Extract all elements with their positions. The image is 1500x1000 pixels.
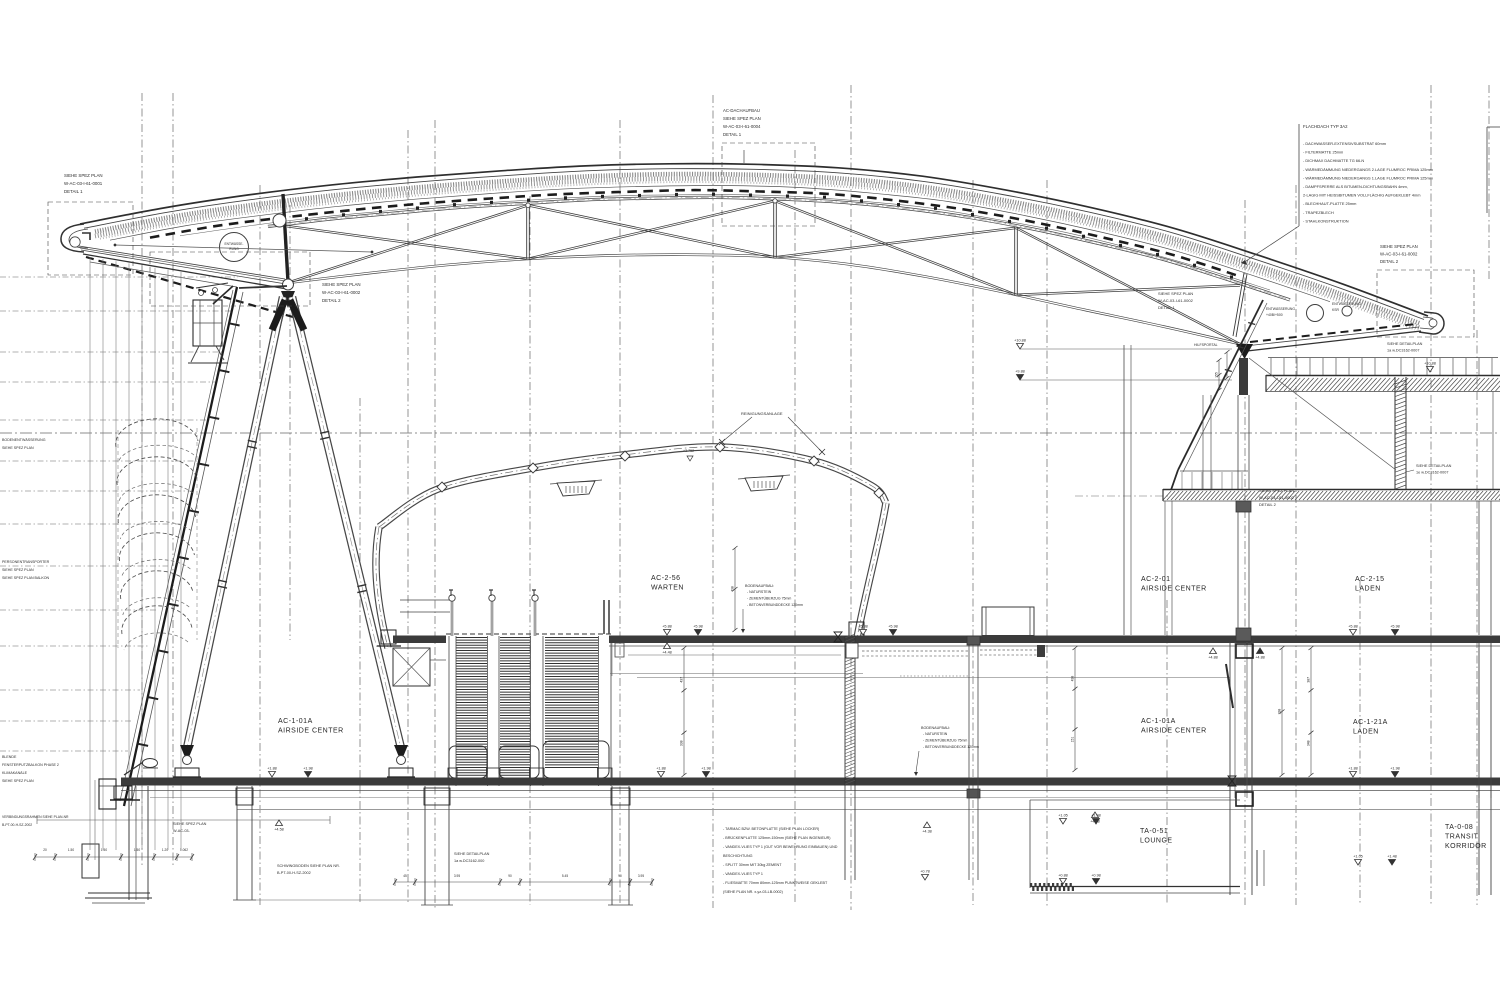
svg-text:AC-1-01A: AC-1-01A bbox=[278, 718, 313, 725]
svg-text:- DICHMAX DACHMATTE TG 66-N: - DICHMAX DACHMATTE TG 66-N bbox=[1303, 158, 1364, 163]
svg-text:2-LAGIG MIT HEISSBITUMEN VOLLF: 2-LAGIG MIT HEISSBITUMEN VOLLFLÄCHIG AUF… bbox=[1303, 193, 1420, 198]
svg-text:SCHWINGBODEN SIEHE PLAN NR.: SCHWINGBODEN SIEHE PLAN NR. bbox=[277, 864, 340, 868]
svg-text:ENTWÄSSE-: ENTWÄSSE- bbox=[225, 242, 244, 246]
svg-text:+9.88: +9.88 bbox=[1015, 370, 1025, 374]
svg-text:+1.48: +1.48 bbox=[1091, 814, 1101, 818]
svg-text:LOUNGE: LOUNGE bbox=[1140, 838, 1173, 845]
svg-text:+3.752: +3.752 bbox=[683, 449, 694, 453]
svg-text:DETAIL 2: DETAIL 2 bbox=[322, 298, 341, 303]
svg-text:- SPLITT 30mm MIT 30kg ZEMENT: - SPLITT 30mm MIT 30kg ZEMENT bbox=[723, 863, 782, 867]
svg-text:AIRSIDE CENTER: AIRSIDE CENTER bbox=[1141, 586, 1207, 593]
svg-text:VERBINDUNGSRAHMEN SIEHE PLAN-N: VERBINDUNGSRAHMEN SIEHE PLAN-NR bbox=[2, 815, 69, 819]
svg-text:348: 348 bbox=[1307, 740, 1311, 746]
svg-text:W-AC-03-I-61-0002: W-AC-03-I-61-0002 bbox=[1380, 252, 1418, 257]
svg-text:1a w.DC3162-000: 1a w.DC3162-000 bbox=[454, 859, 484, 863]
svg-text:PERSONENTRANSPORTER: PERSONENTRANSPORTER bbox=[2, 560, 50, 564]
svg-text:20: 20 bbox=[43, 848, 47, 852]
svg-text:REINIGUNGSANLAGE: REINIGUNGSANLAGE bbox=[741, 411, 783, 416]
svg-text:- FILTERMATTE 25mm: - FILTERMATTE 25mm bbox=[1303, 150, 1343, 155]
svg-text:1.50: 1.50 bbox=[68, 848, 74, 852]
svg-text:SIEHE SPEZ PLAN: SIEHE SPEZ PLAN bbox=[1259, 488, 1294, 493]
svg-text:KSR: KSR bbox=[1332, 308, 1340, 312]
svg-text:DETAIL 1: DETAIL 1 bbox=[1158, 305, 1176, 310]
svg-text:+10.88: +10.88 bbox=[1424, 362, 1436, 366]
svg-text:45: 45 bbox=[403, 874, 407, 878]
svg-text:- BLECHHAUT-PLATTE 25mm: - BLECHHAUT-PLATTE 25mm bbox=[1303, 201, 1356, 206]
svg-text:SIEHE SPEZ PLAN: SIEHE SPEZ PLAN bbox=[1380, 244, 1418, 249]
svg-text:- WÄRMEDÄMMUNG NIEDERGANGS 2.L: - WÄRMEDÄMMUNG NIEDERGANGS 2.LAGE FLUMRO… bbox=[1303, 167, 1433, 172]
svg-text:+1.88: +1.88 bbox=[1348, 767, 1358, 771]
svg-text:155: 155 bbox=[1215, 372, 1219, 378]
svg-text:DETAIL 1: DETAIL 1 bbox=[723, 132, 742, 137]
svg-text:151: 151 bbox=[1071, 737, 1075, 743]
svg-text:AC-2-15: AC-2-15 bbox=[1355, 576, 1385, 583]
svg-text:AC-1-01A: AC-1-01A bbox=[1141, 718, 1176, 725]
svg-text:+5.98: +5.98 bbox=[888, 625, 898, 629]
svg-text:KORRIDOR: KORRIDOR bbox=[1445, 843, 1487, 850]
svg-text:DETAIL 2: DETAIL 2 bbox=[1259, 502, 1277, 507]
svg-text:1.20: 1.20 bbox=[162, 848, 168, 852]
svg-text:RUNG: RUNG bbox=[229, 247, 239, 251]
svg-text:3.95: 3.95 bbox=[638, 874, 644, 878]
svg-text:- TRAPEZBLECH: - TRAPEZBLECH bbox=[1303, 210, 1334, 215]
svg-text:1a w.DC3162-0007: 1a w.DC3162-0007 bbox=[1387, 349, 1420, 353]
svg-text:AIRSIDE CENTER: AIRSIDE CENTER bbox=[278, 728, 344, 735]
svg-text:SIEHE SPEZ PLAN: SIEHE SPEZ PLAN bbox=[1158, 291, 1193, 296]
svg-text:+5.88: +5.88 bbox=[1348, 625, 1358, 629]
svg-text:+40B/+500: +40B/+500 bbox=[1266, 313, 1283, 317]
svg-text:SIEHE SPEZ PLAN: SIEHE SPEZ PLAN bbox=[64, 173, 103, 178]
svg-text:LADEN: LADEN bbox=[1355, 586, 1381, 593]
svg-text:DETAIL 1: DETAIL 1 bbox=[64, 189, 83, 194]
svg-text:W-AC-03-I-61-0002: W-AC-03-I-61-0002 bbox=[1158, 298, 1194, 303]
svg-text:- ZEMENTÜBERZUG 75mm: - ZEMENTÜBERZUG 75mm bbox=[923, 738, 967, 742]
svg-text:+1.98: +1.98 bbox=[303, 767, 313, 771]
svg-text:BODENAUFBAU:: BODENAUFBAU: bbox=[745, 584, 774, 588]
svg-text:+0.88: +0.88 bbox=[1058, 874, 1068, 878]
svg-text:437: 437 bbox=[680, 677, 684, 683]
svg-text:- TARMAC BZW. BETONPLATTE (SIE: - TARMAC BZW. BETONPLATTE (SIEHE PLAN LO… bbox=[723, 827, 819, 831]
svg-text:B-PT-00-H-SZ-2002: B-PT-00-H-SZ-2002 bbox=[2, 823, 32, 827]
svg-text:438: 438 bbox=[731, 586, 735, 592]
svg-text:+5.88: +5.88 bbox=[662, 625, 672, 629]
svg-text:+0.98: +0.98 bbox=[1091, 874, 1101, 878]
svg-text:338: 338 bbox=[1278, 709, 1282, 715]
svg-text:1e w.DC3162-0007: 1e w.DC3162-0007 bbox=[1416, 471, 1449, 475]
svg-text:338: 338 bbox=[680, 740, 684, 746]
svg-text:W-AC-03-: W-AC-03- bbox=[173, 829, 191, 833]
svg-text:+1.05: +1.05 bbox=[1058, 814, 1068, 818]
svg-text:SIEHE SPEZ PLAN BALKON: SIEHE SPEZ PLAN BALKON bbox=[2, 576, 50, 580]
svg-text:- NATURSTEIN: - NATURSTEIN bbox=[747, 590, 772, 594]
svg-text:+4.48: +4.48 bbox=[662, 651, 672, 655]
svg-text:+4.88: +4.88 bbox=[1255, 656, 1265, 660]
svg-text:+1.88: +1.88 bbox=[656, 767, 666, 771]
svg-text:- STAHLKONSTRUKTION: - STAHLKONSTRUKTION bbox=[1303, 218, 1349, 223]
svg-text:SIEHE SPEZ PLAN: SIEHE SPEZ PLAN bbox=[2, 568, 34, 572]
svg-text:- ZEMENTÜBERZUG 75mm: - ZEMENTÜBERZUG 75mm bbox=[747, 596, 791, 600]
svg-text:+5.98: +5.98 bbox=[693, 625, 703, 629]
svg-text:AC-DACHAUFBAU: AC-DACHAUFBAU bbox=[723, 108, 760, 113]
svg-text:+5.88: +5.88 bbox=[858, 625, 868, 629]
svg-text:AC-2-01: AC-2-01 bbox=[1141, 576, 1171, 583]
svg-text:+1.88: +1.88 bbox=[267, 767, 277, 771]
svg-text:AIRSIDE CENTER: AIRSIDE CENTER bbox=[1141, 728, 1207, 735]
svg-text:WARTEN: WARTEN bbox=[651, 585, 684, 592]
svg-text:1.062: 1.062 bbox=[180, 848, 188, 852]
svg-text:B-PT-00-H-SZ-2002: B-PT-00-H-SZ-2002 bbox=[277, 871, 311, 875]
svg-text:- BETONVERBUNDDECKE 120mm: - BETONVERBUNDDECKE 120mm bbox=[747, 603, 803, 607]
svg-text:+1.05: +1.05 bbox=[1353, 855, 1363, 859]
svg-text:- NATURSTEIN: - NATURSTEIN bbox=[923, 732, 948, 736]
svg-text:HILFSPORTAL: HILFSPORTAL bbox=[1194, 343, 1218, 347]
svg-text:387: 387 bbox=[1307, 677, 1311, 683]
svg-text:ENTWÄSSERUNG: ENTWÄSSERUNG bbox=[1266, 307, 1295, 311]
svg-text:AC-2-56: AC-2-56 bbox=[651, 575, 681, 582]
svg-text:BESCHICHTUNG: BESCHICHTUNG bbox=[723, 854, 753, 858]
svg-text:5.45: 5.45 bbox=[562, 874, 568, 878]
svg-text:+10.88: +10.88 bbox=[1014, 339, 1026, 343]
svg-text:+0.78: +0.78 bbox=[920, 870, 930, 874]
svg-text:TRANSIT: TRANSIT bbox=[1445, 834, 1479, 841]
svg-text:+4.88: +4.88 bbox=[1208, 656, 1218, 660]
svg-text:- DACHWASSER-EXTENSIVSUBSTRAT: - DACHWASSER-EXTENSIVSUBSTRAT 60mm bbox=[1303, 141, 1386, 146]
svg-text:3.95: 3.95 bbox=[454, 874, 460, 878]
svg-text:+4.38: +4.38 bbox=[922, 830, 932, 834]
svg-text:- VANDEX-VLIES TYP 1 (GUT VOR: - VANDEX-VLIES TYP 1 (GUT VOR BEWEHRUNG … bbox=[723, 845, 838, 849]
svg-text:FLACHDACH TYP 3A2: FLACHDACH TYP 3A2 bbox=[1303, 124, 1348, 129]
svg-text:- VANDEX-VLIES TYP 1: - VANDEX-VLIES TYP 1 bbox=[723, 872, 763, 876]
svg-text:438: 438 bbox=[1071, 676, 1075, 682]
svg-text:SIEHE DETAILPLAN: SIEHE DETAILPLAN bbox=[1416, 464, 1452, 468]
svg-text:- WÄRMEDÄMMUNG NIEDERGANGS 1.L: - WÄRMEDÄMMUNG NIEDERGANGS 1.LAGE FLUMRO… bbox=[1303, 175, 1433, 180]
svg-text:TA-0-51: TA-0-51 bbox=[1140, 828, 1168, 835]
svg-text:+1.98: +1.98 bbox=[701, 767, 711, 771]
svg-text:- DAMPFSPERRE ALS BITUMEN-DICH: - DAMPFSPERRE ALS BITUMEN-DICHTUNGSBAHN … bbox=[1303, 184, 1408, 189]
svg-text:SIEHE DETAILPLAN: SIEHE DETAILPLAN bbox=[1387, 342, 1423, 346]
svg-text:W-AC-03-I-61-0002: W-AC-03-I-61-0002 bbox=[1259, 495, 1295, 500]
svg-text:LADEN: LADEN bbox=[1353, 729, 1379, 736]
svg-text:SIEHE SPEZ PLAN: SIEHE SPEZ PLAN bbox=[322, 282, 361, 287]
svg-text:AC-1-21A: AC-1-21A bbox=[1353, 719, 1388, 726]
svg-text:KLIMAKANÄLE: KLIMAKANÄLE bbox=[2, 771, 28, 775]
svg-text:- FLIESMATTE 70mm 80mm-125mm P: - FLIESMATTE 70mm 80mm-125mm PUNKTWEISE … bbox=[723, 881, 828, 885]
svg-text:W-AC-03-I-61-0004: W-AC-03-I-61-0004 bbox=[723, 124, 761, 129]
svg-text:- BETONVERBUNDDECKE 120mm: - BETONVERBUNDDECKE 120mm bbox=[923, 745, 979, 749]
svg-text:+4.58: +4.58 bbox=[274, 828, 284, 832]
svg-text:SIEHE SPEZ PLAN: SIEHE SPEZ PLAN bbox=[723, 116, 761, 121]
svg-text:+1.48: +1.48 bbox=[1387, 855, 1397, 859]
svg-text:1.50: 1.50 bbox=[134, 848, 140, 852]
svg-text:SIEHE DETAILPLAN: SIEHE DETAILPLAN bbox=[454, 852, 490, 856]
svg-text:SIEHE SPEZ PLAN: SIEHE SPEZ PLAN bbox=[173, 822, 207, 826]
svg-text:SIEHE SPEZ PLAN: SIEHE SPEZ PLAN bbox=[2, 446, 34, 450]
svg-text:+1.98: +1.98 bbox=[1390, 767, 1400, 771]
svg-text:- BRÜCKENPLATTE 125mm-150mm (S: - BRÜCKENPLATTE 125mm-150mm (SIEHE PLAN … bbox=[723, 836, 831, 840]
svg-text:BODENENTWÄSSERUNG: BODENENTWÄSSERUNG bbox=[2, 438, 46, 442]
svg-text:BODENAUFBAU:: BODENAUFBAU: bbox=[921, 726, 950, 730]
svg-text:SIEHE SPEZ PLAN: SIEHE SPEZ PLAN bbox=[2, 779, 34, 783]
svg-text:90: 90 bbox=[508, 874, 512, 878]
svg-text:BLENDE: BLENDE bbox=[2, 755, 17, 759]
svg-text:W-AC-03-I-61-0001: W-AC-03-I-61-0001 bbox=[64, 181, 103, 186]
svg-text:ENTWÄSSERUNG: ENTWÄSSERUNG bbox=[1332, 302, 1361, 306]
svg-text:(SIEHE PLAN NR. x-yz-03-LB-000: (SIEHE PLAN NR. x-yz-03-LB-0002) bbox=[723, 890, 783, 894]
svg-text:90: 90 bbox=[618, 874, 622, 878]
svg-text:FENSTERPUTZBALKON PHASE 2: FENSTERPUTZBALKON PHASE 2 bbox=[2, 763, 59, 767]
svg-text:+5.98: +5.98 bbox=[1390, 625, 1400, 629]
svg-text:DETAIL 2: DETAIL 2 bbox=[1380, 259, 1399, 264]
svg-text:W-AC-03-I-61-0002: W-AC-03-I-61-0002 bbox=[322, 290, 361, 295]
svg-text:TA-0-08: TA-0-08 bbox=[1445, 824, 1473, 831]
svg-text:1.50: 1.50 bbox=[101, 848, 107, 852]
